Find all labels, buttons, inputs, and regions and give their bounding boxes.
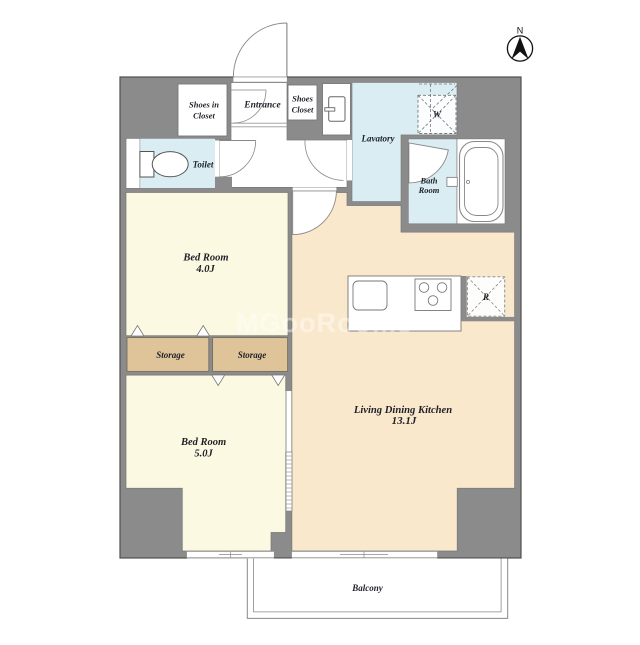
svg-text:W: W (433, 110, 442, 120)
svg-text:Storage: Storage (238, 350, 267, 360)
svg-text:Shoes in: Shoes in (189, 100, 219, 110)
svg-text:Balcony: Balcony (351, 583, 384, 593)
svg-text:Bed Room: Bed Room (182, 253, 228, 264)
svg-text:4.0J: 4.0J (195, 264, 215, 275)
svg-text:Closet: Closet (193, 111, 215, 121)
svg-text:R: R (482, 292, 489, 302)
svg-text:13.1J: 13.1J (392, 415, 417, 427)
svg-text:Room: Room (418, 185, 440, 195)
svg-text:Bed Room: Bed Room (180, 437, 226, 448)
svg-text:Shoes: Shoes (292, 94, 313, 104)
svg-text:Bath: Bath (419, 176, 437, 186)
svg-text:N: N (517, 26, 524, 36)
svg-text:Storage: Storage (156, 350, 185, 360)
svg-text:MGooRooms: MGooRooms (236, 308, 413, 338)
svg-text:Entrance: Entrance (243, 101, 281, 111)
svg-text:Lavatory: Lavatory (361, 134, 396, 144)
svg-text:5.0J: 5.0J (194, 449, 213, 460)
svg-text:Closet: Closet (292, 105, 314, 115)
svg-text:Toilet: Toilet (193, 160, 214, 170)
